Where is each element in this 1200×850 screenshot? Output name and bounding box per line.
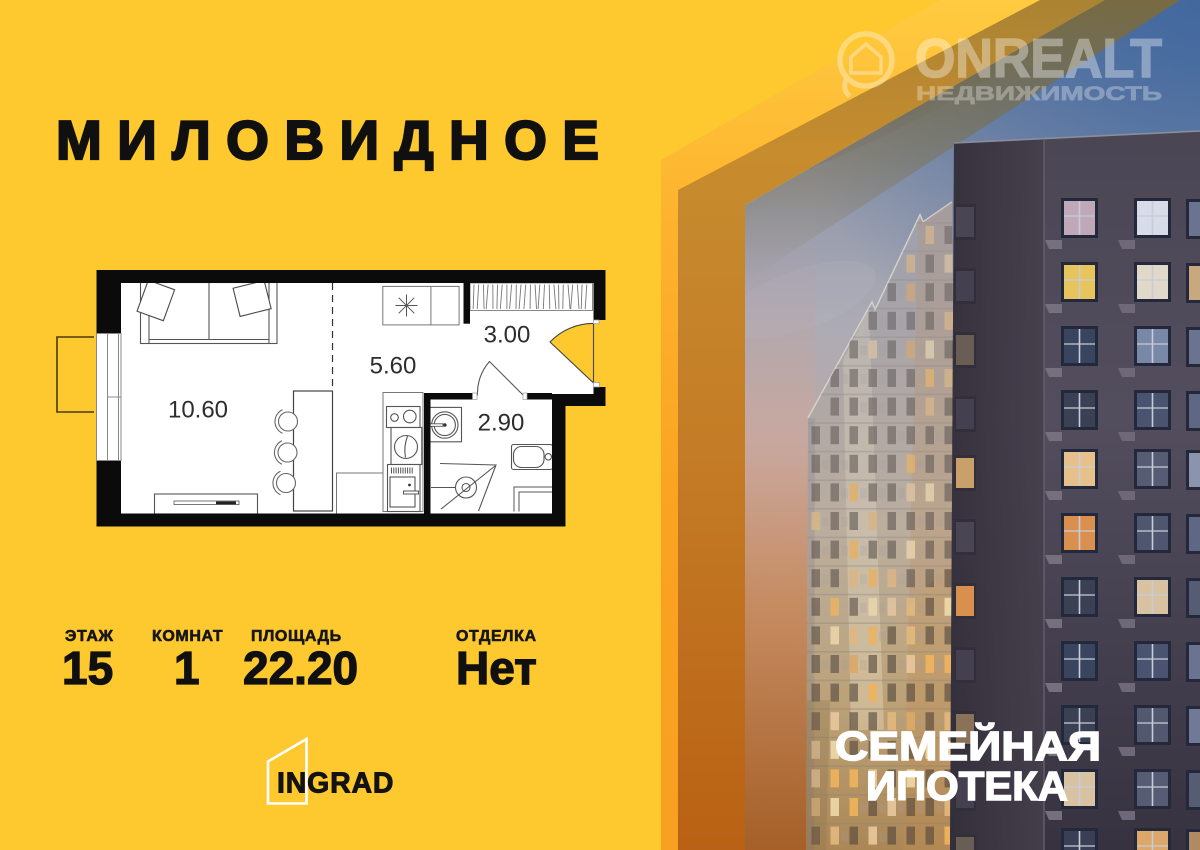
svg-text:INGRAD: INGRAD (277, 768, 394, 800)
